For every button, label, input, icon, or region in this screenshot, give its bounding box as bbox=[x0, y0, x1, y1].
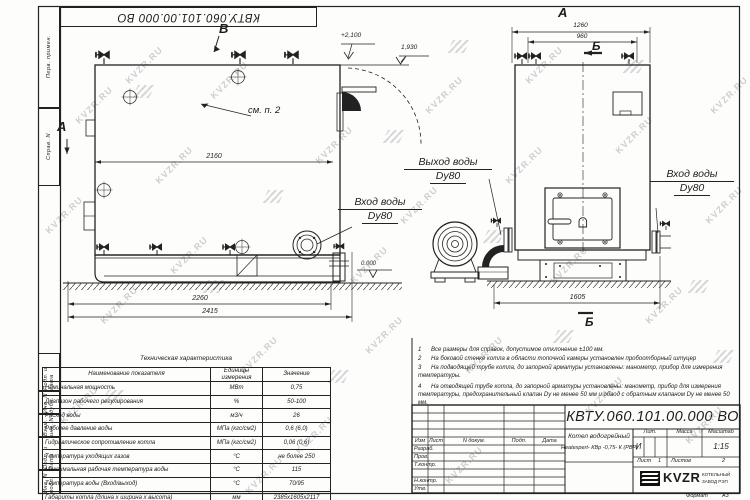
tech-col-header: Значение bbox=[263, 368, 331, 382]
note-number: 4 bbox=[418, 383, 431, 391]
table-row: Гидравлическое сопротивление котлаМПа (к… bbox=[43, 436, 331, 450]
tech-name: Номинальная мощность bbox=[43, 382, 211, 396]
valve-icon bbox=[96, 51, 109, 64]
valve-icon bbox=[334, 244, 344, 253]
note-text: На боковой стенке котла в области топочн… bbox=[431, 356, 696, 362]
margin-label: Справ. N bbox=[46, 133, 52, 160]
valve-icon bbox=[150, 244, 162, 255]
tech-value: 0,06 (0,6) bbox=[263, 436, 331, 450]
table-row: Номинальная мощностьМВт0,75 bbox=[43, 382, 331, 396]
lifting-point-icon bbox=[230, 69, 247, 86]
doc-number-stamp-rotated: КВТУ.060.101.00.000 ВО bbox=[60, 7, 317, 27]
lifting-point-icon bbox=[234, 239, 251, 256]
tech-name: Гидравлическое сопротивление котла bbox=[43, 436, 211, 450]
tech-name: Диапазон рабочего регулирования bbox=[43, 395, 211, 409]
valve-icon bbox=[285, 51, 298, 64]
label-text: Dy80 bbox=[430, 170, 467, 184]
company-name-line1: КОТЕЛЬНЫЙ bbox=[702, 473, 730, 478]
note-text: На подводящей трубе котла, до запорной а… bbox=[418, 365, 723, 379]
drawing-sheet: KVZR.RU KVZR.RU KVZR.RU KVZR.RU KVZR.RU … bbox=[0, 0, 750, 500]
kvzr-logo-text: KVZR bbox=[663, 471, 700, 484]
tech-value: 26 bbox=[263, 409, 331, 423]
tech-value: 0,6 (6,0) bbox=[263, 423, 331, 437]
margin-cell-perv: Перв. примен. bbox=[38, 6, 60, 108]
label-text: Dy80 bbox=[674, 182, 711, 196]
tech-name: Максимальная рабочая температура воды bbox=[43, 464, 211, 478]
tech-unit: МПа (кгс/см2) bbox=[211, 436, 263, 450]
tech-value: 2385х1605х2117 bbox=[263, 491, 331, 500]
label-text: Вход воды bbox=[338, 196, 422, 210]
note-item: 1Все размеры для справок, допустимое отк… bbox=[418, 346, 736, 354]
tech-name: Температура уходящих газов bbox=[43, 450, 211, 464]
note-item: 2На боковой стенке котла в области топоч… bbox=[418, 355, 736, 363]
tech-unit: МПа (кгс/см2) bbox=[211, 423, 263, 437]
valve-icon bbox=[97, 244, 109, 255]
valve-icon bbox=[515, 53, 527, 64]
label-water-outlet: Выход водыDy80 bbox=[404, 156, 492, 184]
margin-label: Перв. примен. bbox=[46, 35, 52, 78]
tech-unit: °С bbox=[211, 450, 263, 464]
company-name-line2: ЗАВОД РЭП bbox=[702, 480, 728, 485]
label-text: Вход воды bbox=[650, 168, 734, 182]
tech-name: Габариты котла (длина х ширина х высота) bbox=[43, 491, 211, 500]
tech-unit: МВт bbox=[211, 382, 263, 396]
valve-icon bbox=[529, 53, 541, 64]
note-text: Все размеры для справок, допустимое откл… bbox=[431, 347, 604, 353]
valve-icon bbox=[223, 244, 235, 255]
table-row: Температура уходящих газов°Сне более 250 bbox=[43, 450, 331, 464]
label-water-inlet-side: Вход водыDy80 bbox=[650, 168, 734, 196]
label-text: Выход воды bbox=[404, 156, 492, 170]
tech-col-header: Наименование показателя bbox=[43, 368, 211, 382]
tech-name: Температура воды (Вход/выход) bbox=[43, 477, 211, 491]
margin-cell-sprav: Справ. N bbox=[38, 108, 60, 186]
tech-value: 70/95 bbox=[263, 477, 331, 491]
tech-table: Наименование показателя Единицы измерени… bbox=[42, 367, 331, 500]
valve-icon bbox=[622, 53, 634, 64]
doc-number-text: КВТУ.060.101.00.000 ВО bbox=[117, 11, 260, 23]
tech-value: 115 bbox=[263, 464, 331, 478]
tech-col-header: Единицы измерения bbox=[211, 368, 263, 382]
tech-value: 0,75 bbox=[263, 382, 331, 396]
table-row: Температура воды (Вход/выход)°С70/95 bbox=[43, 477, 331, 491]
table-row: Рабочее давление водыМПа (кгс/см2)0,6 (6… bbox=[43, 423, 331, 437]
note-number: 3 bbox=[418, 364, 431, 372]
kvzr-logo-icon bbox=[640, 471, 660, 486]
table-row: Диапазон рабочего регулирования%50-100 bbox=[43, 395, 331, 409]
note-number: 2 bbox=[418, 355, 431, 363]
table-row: Расход водым3/ч26 bbox=[43, 409, 331, 423]
tech-name: Расход воды bbox=[43, 409, 211, 423]
tech-unit: °С bbox=[211, 464, 263, 478]
lifting-point-icon bbox=[122, 89, 139, 106]
tech-unit: % bbox=[211, 395, 263, 409]
table-row: Максимальная рабочая температура воды°С1… bbox=[43, 464, 331, 478]
valve-icon bbox=[660, 221, 669, 230]
tech-name: Рабочее давление воды bbox=[43, 423, 211, 437]
tech-value: не более 250 bbox=[263, 450, 331, 464]
label-text: Dy80 bbox=[362, 210, 399, 224]
tech-unit: м3/ч bbox=[211, 409, 263, 423]
note-item: 3На подводящей трубе котла, до запорной … bbox=[418, 364, 736, 380]
tech-unit: мм bbox=[211, 491, 263, 500]
valve-icon bbox=[232, 51, 245, 64]
lifting-point-icon bbox=[96, 182, 113, 199]
note-number: 1 bbox=[418, 346, 431, 354]
tech-unit: °С bbox=[211, 477, 263, 491]
label-water-inlet-front: Вход водыDy80 bbox=[338, 196, 422, 224]
note-item: 4На отводящей трубе котла, до запорной а… bbox=[418, 383, 736, 408]
note-text: На отводящей трубе котла, до запорной ар… bbox=[418, 384, 730, 406]
table-row: Габариты котла (длина х ширина х высота)… bbox=[43, 491, 331, 500]
tech-value: 50-100 bbox=[263, 395, 331, 409]
